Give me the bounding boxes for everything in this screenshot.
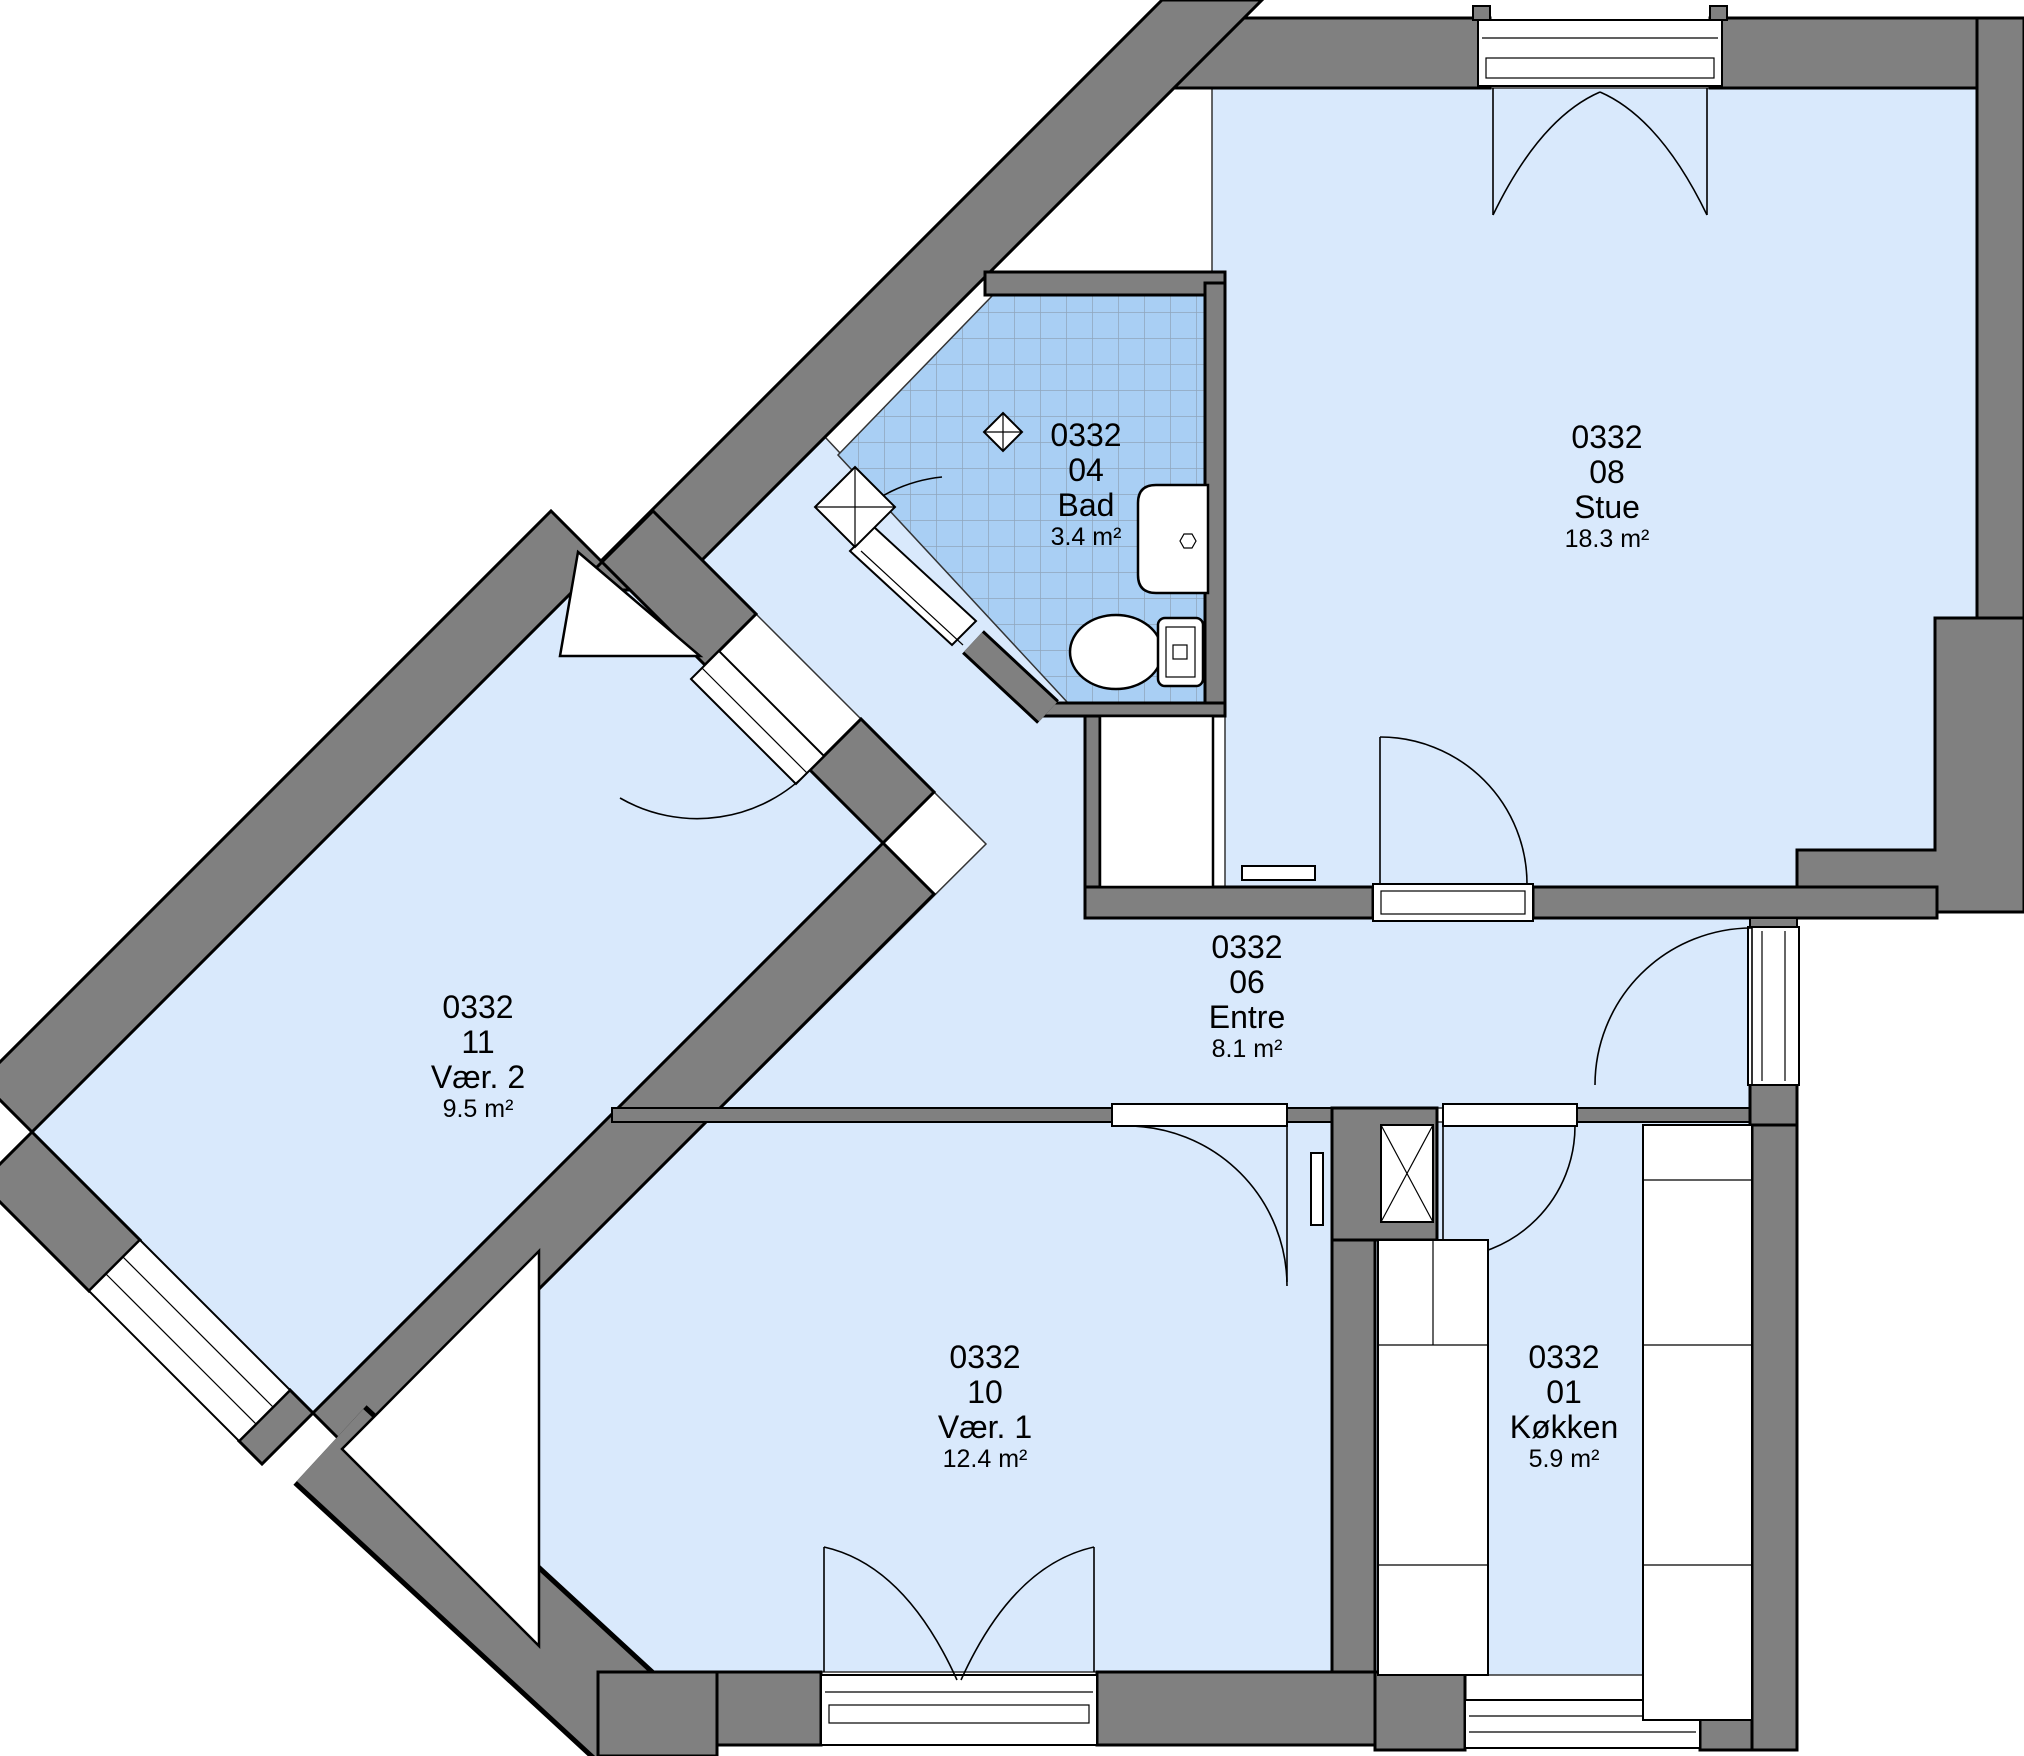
void-below-bath [1100, 716, 1213, 887]
wall-right-upper [1977, 18, 2024, 618]
wall-entre-mid [1287, 1108, 1332, 1122]
vaer1-floor [539, 1122, 1332, 1672]
wall-jamb-tab-right [1710, 6, 1727, 20]
wall-bath-bottom [1040, 703, 1225, 716]
sink-icon [1138, 485, 1208, 593]
shaft-koekken [1381, 1125, 1433, 1222]
svg-text:9.5 m²: 9.5 m² [443, 1095, 514, 1123]
svg-text:10: 10 [967, 1374, 1003, 1410]
svg-text:Køkken: Køkken [1510, 1409, 1618, 1445]
svg-text:0332: 0332 [1211, 929, 1282, 965]
wall-void-left [1085, 716, 1100, 887]
radiator-stue [1242, 866, 1315, 880]
svg-text:08: 08 [1589, 454, 1625, 490]
svg-text:Stue: Stue [1574, 489, 1640, 525]
wall-jamb-tab-left [1473, 6, 1490, 20]
wall-koekken-west [1332, 1240, 1375, 1675]
svg-text:0332: 0332 [1050, 417, 1121, 453]
svg-text:04: 04 [1068, 452, 1104, 488]
wall-vaer1-bottom-step [598, 1672, 717, 1756]
radiator-entre [1311, 1153, 1323, 1225]
svg-text:8.1 m²: 8.1 m² [1212, 1035, 1283, 1063]
svg-text:0332: 0332 [1528, 1339, 1599, 1375]
svg-text:0332: 0332 [949, 1339, 1020, 1375]
wall-entre-vaer1 [612, 1108, 1112, 1122]
wall-entre-koekken [1577, 1108, 1752, 1122]
svg-text:5.9 m²: 5.9 m² [1529, 1445, 1600, 1473]
wall-vaer1-bottom-east [1097, 1672, 1375, 1745]
svg-text:Vær. 1: Vær. 1 [938, 1409, 1032, 1445]
wall-koekken-bottom-west [1375, 1672, 1465, 1750]
wall-entre-stue-west [1085, 887, 1373, 918]
wall-entre-right-bottom [1750, 1083, 1797, 1125]
svg-text:0332: 0332 [1571, 419, 1642, 455]
floorplan: 0332 04 Bad 3.4 m² 0332 08 Stue 18.3 m² … [0, 0, 2024, 1756]
wall-entre-stue-east [1533, 887, 1937, 918]
svg-text:Vær. 2: Vær. 2 [431, 1059, 525, 1095]
svg-text:18.3 m²: 18.3 m² [1565, 525, 1650, 553]
koekken-counter-left [1378, 1240, 1488, 1675]
svg-text:3.4 m²: 3.4 m² [1051, 523, 1122, 551]
floorplan-canvas: 0332 04 Bad 3.4 m² 0332 08 Stue 18.3 m² … [0, 0, 2024, 1756]
svg-text:11: 11 [461, 1024, 494, 1060]
svg-text:Entre: Entre [1209, 999, 1285, 1035]
toilet-icon [1070, 615, 1203, 689]
svg-text:Bad: Bad [1058, 487, 1115, 523]
koekken-counter-right [1643, 1125, 1752, 1720]
svg-text:12.4 m²: 12.4 m² [943, 1445, 1028, 1473]
svg-text:01: 01 [1546, 1374, 1582, 1410]
svg-text:0332: 0332 [442, 989, 513, 1025]
wall-koekken-east [1752, 1125, 1797, 1750]
svg-text:06: 06 [1229, 964, 1265, 1000]
wall-bath-top [985, 272, 1225, 295]
